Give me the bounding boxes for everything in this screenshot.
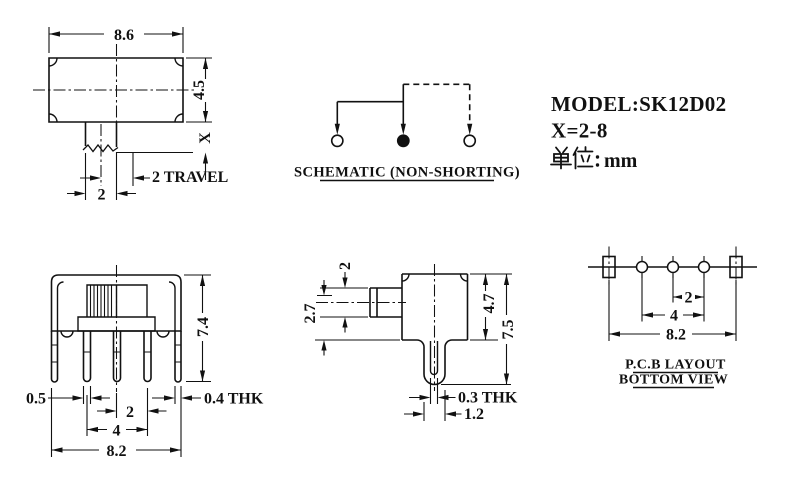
dim-knob-width-label: 2: [337, 262, 354, 270]
dim-overall-label: 8.2: [107, 443, 127, 460]
dim-pitch-label: 2: [126, 404, 134, 421]
dim-bracket-label: 0.4 THK: [204, 391, 264, 408]
terminal-common-filled: [398, 135, 409, 146]
dim-travel-label: 2 TRAVEL: [152, 169, 228, 186]
units-cjk-glyphs: [551, 147, 599, 169]
model-number: MODEL:SK12D02: [551, 92, 726, 116]
dim-knob-label: 2: [98, 187, 106, 204]
schematic-view: SCHEMATIC (NON-SHORTING): [294, 84, 520, 180]
dim-overall-label: 8.2: [666, 327, 686, 344]
technical-drawing-page: 8.6 4.5 X 2 TRAVEL 2 SCHEMATIC (NON-SHOR…: [0, 0, 800, 480]
pcb-layout-label: P.C.B LAYOUT: [625, 358, 726, 373]
side-elevation-view: 2 2.7 4.7 7.5 0.3 THK 1.2: [302, 262, 518, 423]
pin-hole-1: [637, 262, 648, 273]
x-range: X=2-8: [551, 119, 608, 143]
dim-pin-label: 1.2: [464, 406, 484, 423]
terminal-open-left: [332, 135, 343, 146]
dim-span-label: 4: [113, 423, 121, 440]
centerlines: [33, 44, 197, 186]
schematic-label: SCHEMATIC (NON-SHORTING): [294, 165, 520, 181]
terminal-open-right: [464, 135, 475, 146]
colon-dot-top: [596, 155, 599, 158]
top-view: 8.6 4.5 X 2 TRAVEL 2: [33, 27, 228, 204]
dim-pitch-label: 2: [685, 290, 693, 307]
wire-arrowheads: [335, 124, 473, 135]
front-elevation-view: 7.4 0.5 0.4 THK 2 4 8.2: [26, 265, 264, 460]
dim-stem-label: X: [197, 132, 214, 144]
colon-dot-bottom: [596, 163, 599, 166]
centerlines: [316, 264, 435, 391]
dim-knob-offset-label: 2.7: [302, 304, 319, 324]
dimension-lines: [48, 275, 211, 457]
arrowheads: [52, 275, 206, 453]
dim-width-label: 8.6: [114, 27, 134, 44]
units-value: mm: [604, 150, 638, 172]
pcb-layout-view: 2 4 8.2 P.C.B LAYOUT BOTTOM VIEW: [588, 247, 757, 388]
dim-pin-width-label: 0.5: [26, 391, 46, 408]
dim-body-label: 4.7: [481, 294, 498, 314]
bottom-view-label: BOTTOM VIEW: [619, 373, 728, 388]
dim-height-label: 7.4: [195, 317, 212, 337]
dim-height-label: 4.5: [191, 80, 208, 100]
pin-hole-3: [699, 262, 710, 273]
dim-span-label: 4: [670, 308, 678, 325]
title-block: MODEL:SK12D02 X=2-8 mm: [551, 92, 726, 172]
dim-total-label: 7.5: [500, 320, 517, 340]
dashed-wires: [403, 84, 469, 121]
dim-thk-label: 0.3 THK: [458, 390, 518, 407]
pin-hole-2: [668, 262, 679, 273]
drawing-svg: 8.6 4.5 X 2 TRAVEL 2 SCHEMATIC (NON-SHOR…: [0, 0, 800, 480]
knob-hatch: [91, 285, 112, 317]
solid-wires: [337, 84, 403, 124]
